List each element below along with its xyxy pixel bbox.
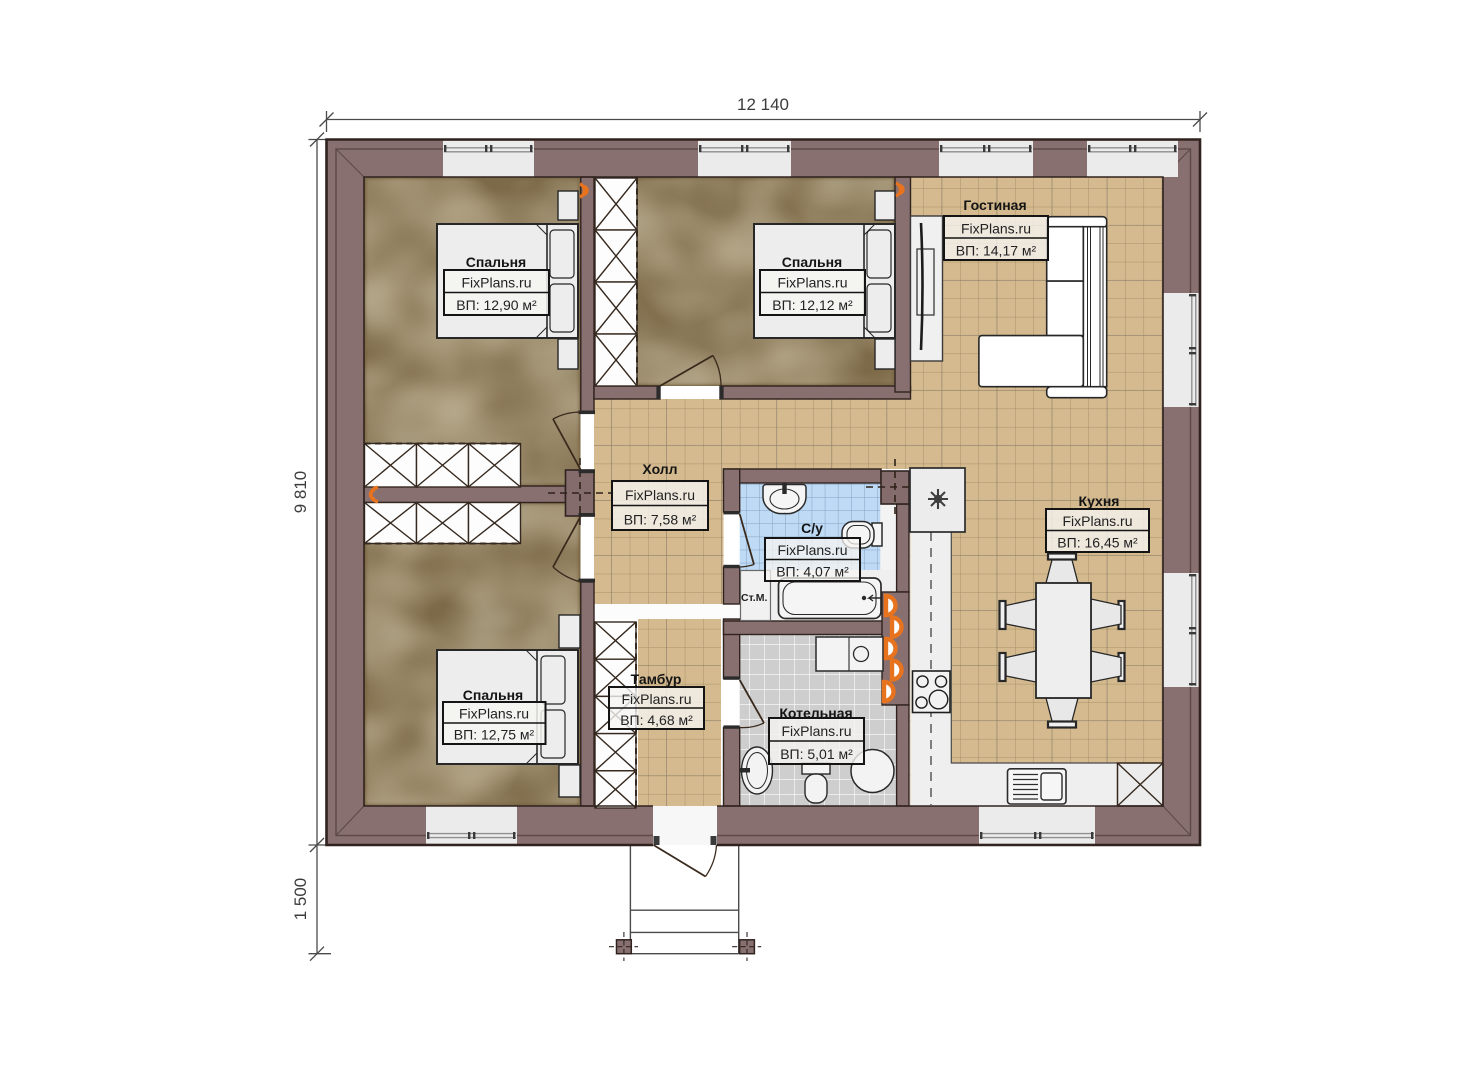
svg-text:ВП: 14,17 м²: ВП: 14,17 м² xyxy=(956,243,1037,259)
svg-text:FixPlans.ru: FixPlans.ru xyxy=(961,221,1031,237)
svg-text:Ст.М.: Ст.М. xyxy=(741,592,767,604)
svg-text:FixPlans.ru: FixPlans.ru xyxy=(459,706,529,722)
svg-text:FixPlans.ru: FixPlans.ru xyxy=(621,691,691,707)
svg-text:ВП: 4,07 м²: ВП: 4,07 м² xyxy=(776,564,849,580)
svg-text:1 500: 1 500 xyxy=(291,878,310,921)
svg-text:ВП: 12,75 м²: ВП: 12,75 м² xyxy=(454,727,535,743)
svg-text:FixPlans.ru: FixPlans.ru xyxy=(625,487,695,503)
svg-text:Спальня: Спальня xyxy=(782,254,842,270)
svg-text:Гостиная: Гостиная xyxy=(963,197,1026,213)
svg-text:ВП: 16,45 м²: ВП: 16,45 м² xyxy=(1057,535,1138,551)
svg-text:FixPlans.ru: FixPlans.ru xyxy=(461,275,531,291)
svg-text:FixPlans.ru: FixPlans.ru xyxy=(781,723,851,739)
svg-text:FixPlans.ru: FixPlans.ru xyxy=(777,542,847,558)
svg-text:9 810: 9 810 xyxy=(291,471,310,514)
svg-text:Холл: Холл xyxy=(642,461,677,477)
svg-text:ВП: 5,01 м²: ВП: 5,01 м² xyxy=(780,746,853,762)
svg-text:FixPlans.ru: FixPlans.ru xyxy=(1062,513,1132,529)
svg-text:FixPlans.ru: FixPlans.ru xyxy=(777,275,847,291)
svg-text:ВП: 4,68 м²: ВП: 4,68 м² xyxy=(620,712,693,728)
svg-text:12 140: 12 140 xyxy=(737,95,789,114)
svg-text:Кухня: Кухня xyxy=(1079,493,1120,509)
svg-text:ВП: 12,90 м²: ВП: 12,90 м² xyxy=(456,297,537,313)
svg-text:С/у: С/у xyxy=(801,520,823,536)
svg-text:ВП: 12,12 м²: ВП: 12,12 м² xyxy=(772,297,853,313)
svg-text:Спальня: Спальня xyxy=(466,254,526,270)
svg-text:Тамбур: Тамбур xyxy=(631,671,682,687)
svg-text:Спальня: Спальня xyxy=(463,687,523,703)
svg-text:ВП: 7,58 м²: ВП: 7,58 м² xyxy=(624,512,697,528)
